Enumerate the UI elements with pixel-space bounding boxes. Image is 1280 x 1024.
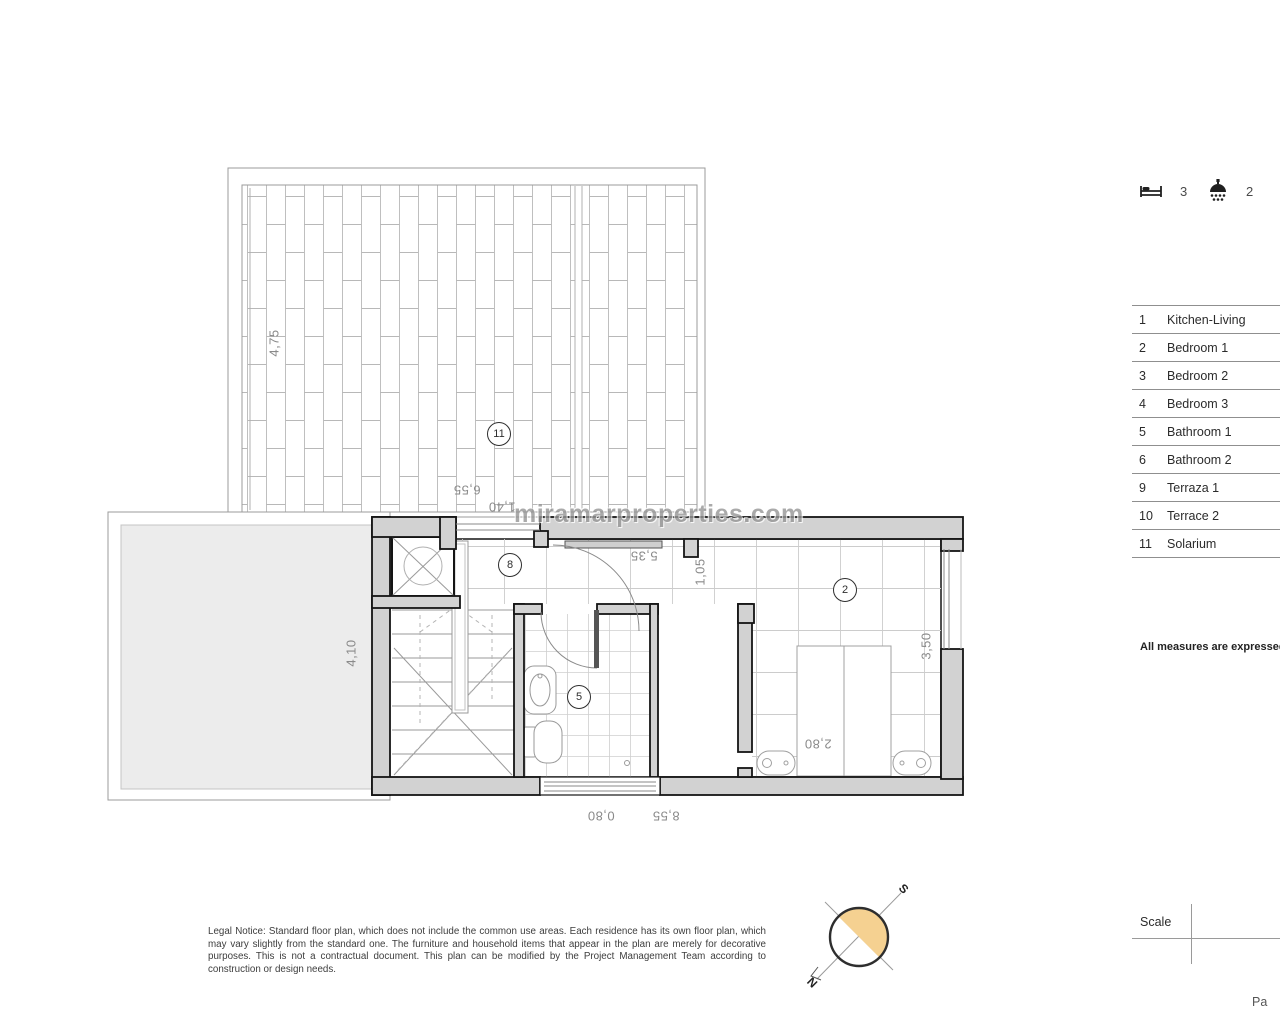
scale-divider-vertical: [1191, 904, 1192, 964]
room-label-solarium: 11: [487, 422, 511, 446]
dim-solarium-small: 1,40: [488, 500, 515, 515]
legal-notice: Legal Notice: Standard floor plan, which…: [208, 926, 766, 977]
dim-terrace-height: 4,10: [344, 639, 359, 666]
room-legend-table: 1Kitchen-Living3 2Bedroom 11 3Bedroom 21…: [1132, 305, 1280, 558]
table-row: 10Terrace 21: [1132, 501, 1280, 529]
measures-note: All measures are expressed in M: [1140, 641, 1280, 653]
room-label-bedroom: 2: [833, 578, 857, 602]
watermark: miramarproperties.com: [514, 500, 804, 529]
bed-icon: [1139, 183, 1163, 201]
dim-bed-width: 2,80: [804, 737, 831, 752]
solarium-roof: [228, 168, 705, 517]
dim-solarium-width: 6,55: [453, 483, 480, 498]
table-row: 9Terraza 1: [1132, 473, 1280, 501]
dim-closet-width: 1,05: [693, 558, 708, 585]
table-row: 5Bathroom 1: [1132, 417, 1280, 445]
scale-divider-horizontal: [1132, 938, 1280, 939]
table-row: 11Solarium3: [1132, 529, 1280, 558]
shower-icon: [1208, 179, 1228, 203]
floorplan-page: miramarproperties.com 11 8 5 2 4,75 6,55…: [0, 0, 1280, 1024]
room-label-hall: 8: [498, 553, 522, 577]
table-row: 4Bedroom 31: [1132, 389, 1280, 417]
table-row: 6Bathroom 2: [1132, 445, 1280, 473]
bathroom-count: 2: [1246, 184, 1253, 199]
room-label-bathroom: 5: [567, 685, 591, 709]
dim-hall-width: 5,35: [630, 549, 657, 564]
compass-rose: N S: [802, 880, 914, 998]
bedroom-count: 3: [1180, 184, 1187, 199]
table-row: 3Bedroom 21: [1132, 361, 1280, 389]
dim-bottom-small: 0,80: [587, 809, 614, 824]
compass-north-label: N: [804, 974, 820, 990]
dim-bottom-total: 8,55: [652, 809, 679, 824]
page-label: Pa: [1252, 995, 1267, 1009]
table-row: 2Bedroom 11: [1132, 333, 1280, 361]
scale-label: Scale: [1140, 915, 1171, 929]
dim-bedroom-window: 3,50: [919, 632, 934, 659]
dim-solarium-height: 4,75: [267, 329, 282, 356]
compass-south-label: S: [896, 881, 912, 897]
table-row: 1Kitchen-Living3: [1132, 305, 1280, 333]
